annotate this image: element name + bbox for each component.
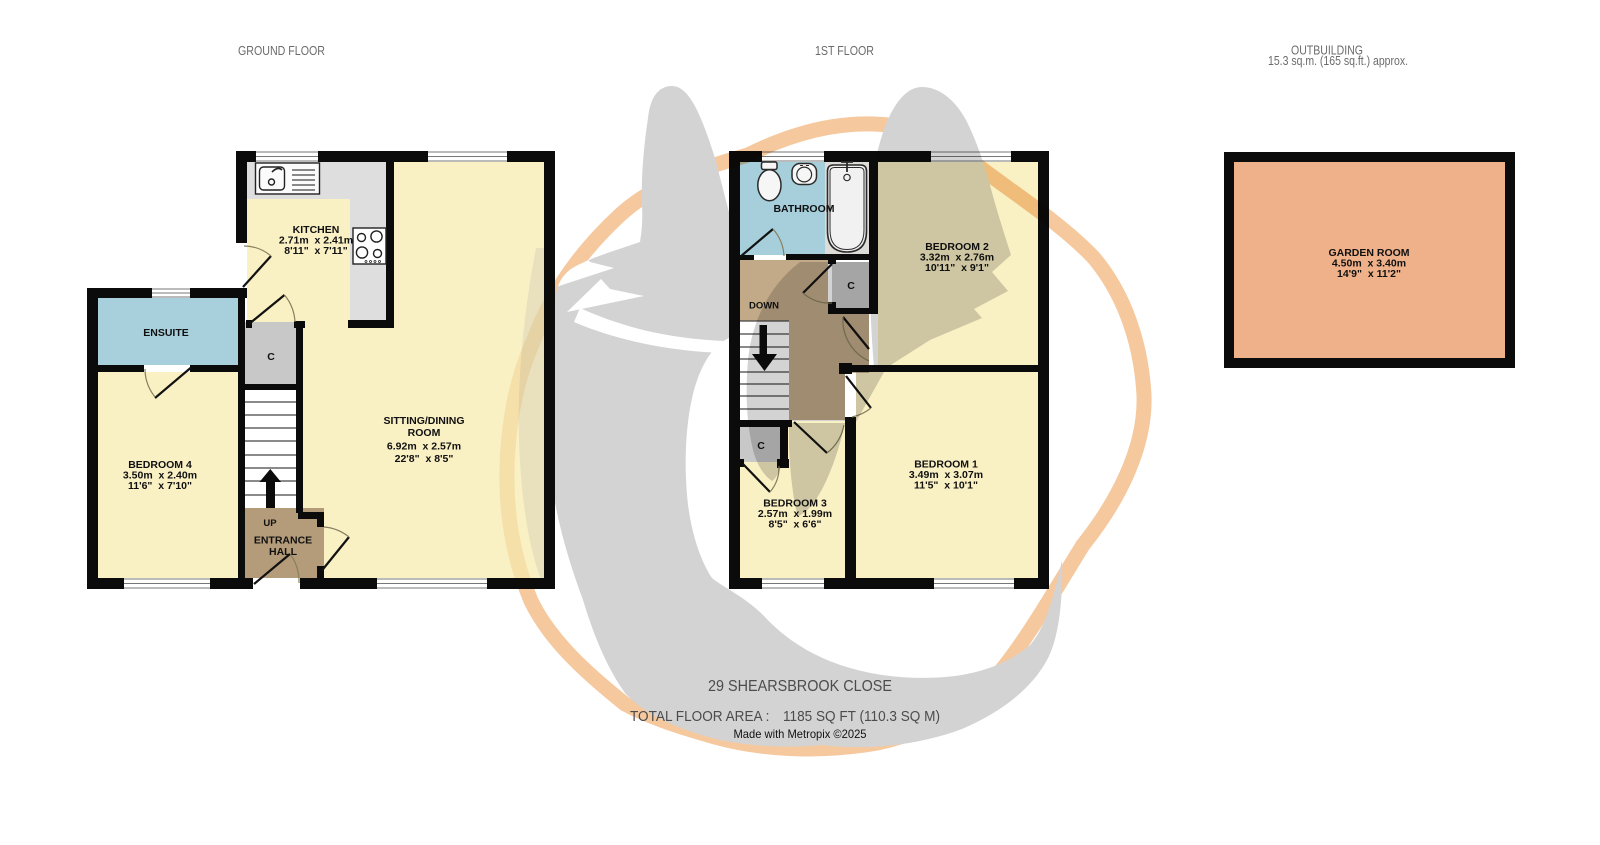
svg-text:ROOM: ROOM xyxy=(408,427,441,439)
svg-text:ENTRANCE: ENTRANCE xyxy=(254,535,312,547)
svg-text:22'8" x 8'5": 22'8" x 8'5" xyxy=(395,453,454,465)
svg-text:BATHROOM: BATHROOM xyxy=(773,203,834,215)
svg-text:8'5" x 6'6": 8'5" x 6'6" xyxy=(769,519,822,531)
svg-text:UP: UP xyxy=(263,518,277,529)
svg-text:14'9" x 11'2": 14'9" x 11'2" xyxy=(1337,268,1401,280)
svg-text:Made with Metropix ©2025: Made with Metropix ©2025 xyxy=(734,727,867,741)
svg-text:1ST FLOOR: 1ST FLOOR xyxy=(815,44,874,58)
svg-text:TOTAL FLOOR AREA : 1185 SQ FT: TOTAL FLOOR AREA : 1185 SQ FT (110.3 SQ … xyxy=(630,709,940,725)
svg-text:HALL: HALL xyxy=(269,546,298,558)
svg-text:GROUND FLOOR: GROUND FLOOR xyxy=(238,44,325,58)
svg-text:ENSUITE: ENSUITE xyxy=(143,327,189,339)
svg-text:29 SHEARSBROOK CLOSE: 29 SHEARSBROOK CLOSE xyxy=(708,678,892,695)
svg-text:15.3 sq.m. (165 sq.ft.) approx: 15.3 sq.m. (165 sq.ft.) approx. xyxy=(1268,54,1408,68)
svg-text:SITTING/DINING: SITTING/DINING xyxy=(383,415,464,427)
svg-text:6.92m x 2.57m: 6.92m x 2.57m xyxy=(387,441,461,453)
svg-text:C: C xyxy=(267,351,275,363)
svg-text:8'11" x 7'11": 8'11" x 7'11" xyxy=(284,245,347,257)
svg-text:11'6" x 7'10": 11'6" x 7'10" xyxy=(128,480,192,492)
svg-text:11'5" x 10'1": 11'5" x 10'1" xyxy=(914,480,978,492)
